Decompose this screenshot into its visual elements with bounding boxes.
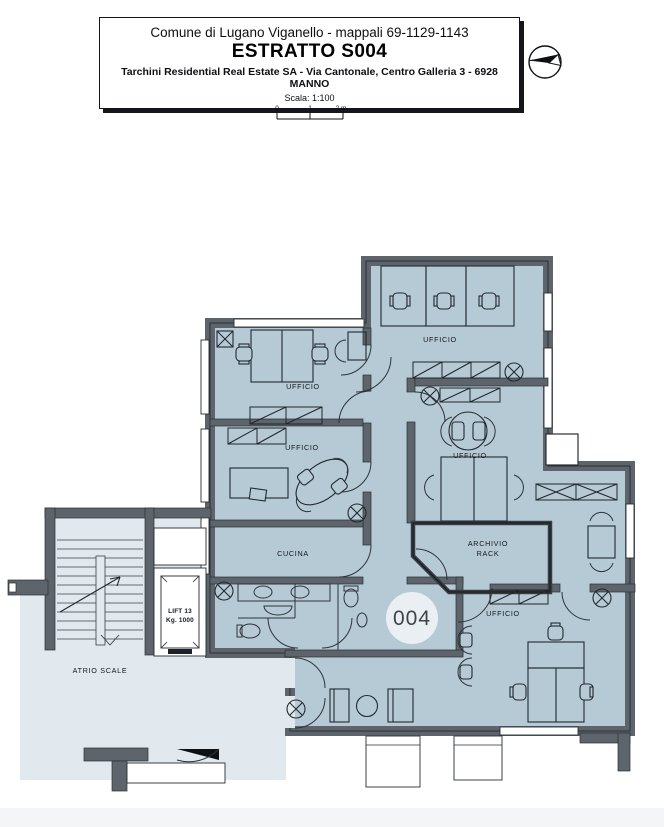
label-atrio: ATRIO SCALE bbox=[73, 666, 128, 675]
floor-plan-drawing: 004 UFFICIO UFFICIO UFFICIO UFFICIO UFFI… bbox=[0, 0, 664, 827]
bottom-band bbox=[0, 808, 664, 827]
north-arrow-icon bbox=[524, 42, 568, 84]
scale-label: Scala: 1:100 bbox=[100, 93, 519, 103]
label-ufficio-bottom-right: UFFICIO bbox=[486, 609, 520, 618]
title-line2: Tarchini Residential Real Estate SA - Vi… bbox=[100, 66, 519, 90]
label-ufficio-mid-left: UFFICIO bbox=[285, 443, 319, 452]
neighbour-structures bbox=[366, 733, 630, 787]
unit-badge: 004 bbox=[386, 592, 438, 644]
title-block: Comune di Lugano Viganello - mappali 69-… bbox=[99, 17, 520, 109]
page-title: ESTRATTO S004 bbox=[100, 41, 519, 63]
label-archivio-2: RACK bbox=[477, 549, 500, 558]
label-archivio-1: ARCHIVIO bbox=[468, 539, 508, 548]
label-ufficio-top-left: UFFICIO bbox=[286, 382, 320, 391]
label-ufficio-top-right: UFFICIO bbox=[423, 335, 457, 344]
scale-tick-2: 2 m bbox=[335, 105, 346, 112]
title-line1: Comune di Lugano Viganello - mappali 69-… bbox=[100, 25, 519, 40]
label-ufficio-center: UFFICIO bbox=[453, 451, 487, 460]
unit-number: 004 bbox=[393, 607, 431, 630]
label-cucina: CUCINA bbox=[277, 549, 309, 558]
balcony-box bbox=[546, 434, 578, 465]
scale-tick-0: 0 bbox=[275, 105, 279, 112]
scale-bar: 0 1 2 m bbox=[264, 103, 356, 120]
scale-tick-1: 1 bbox=[308, 105, 312, 112]
floor-plan-page: 004 UFFICIO UFFICIO UFFICIO UFFICIO UFFI… bbox=[0, 0, 664, 827]
label-lift-2: Kg. 1000 bbox=[166, 617, 194, 624]
label-lift-1: LIFT 13 bbox=[168, 608, 192, 615]
